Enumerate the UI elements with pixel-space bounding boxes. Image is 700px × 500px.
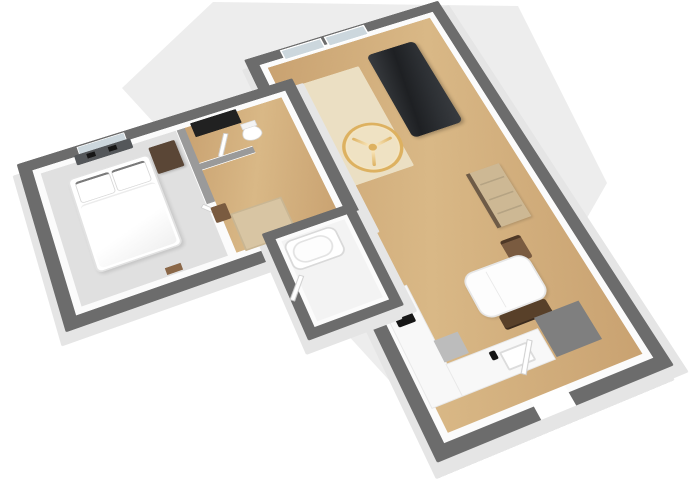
double-bed (67, 154, 183, 274)
window-icon (280, 38, 326, 61)
sideboard (466, 163, 532, 228)
wc-partition-wall (200, 146, 256, 169)
wall-shelf (165, 263, 183, 275)
faucet-icon (488, 350, 499, 361)
toilet (239, 123, 264, 143)
floorplan-scene (0, 0, 690, 500)
window-icon (324, 25, 370, 47)
entry-door-opening (530, 385, 576, 420)
bathtub (282, 225, 348, 273)
wc-door-leaf (218, 133, 228, 157)
floorplan-render (0, 0, 700, 500)
bathroom-door-leaf (290, 275, 305, 302)
wardrobe (190, 109, 242, 137)
kitchen-counter (445, 328, 556, 397)
